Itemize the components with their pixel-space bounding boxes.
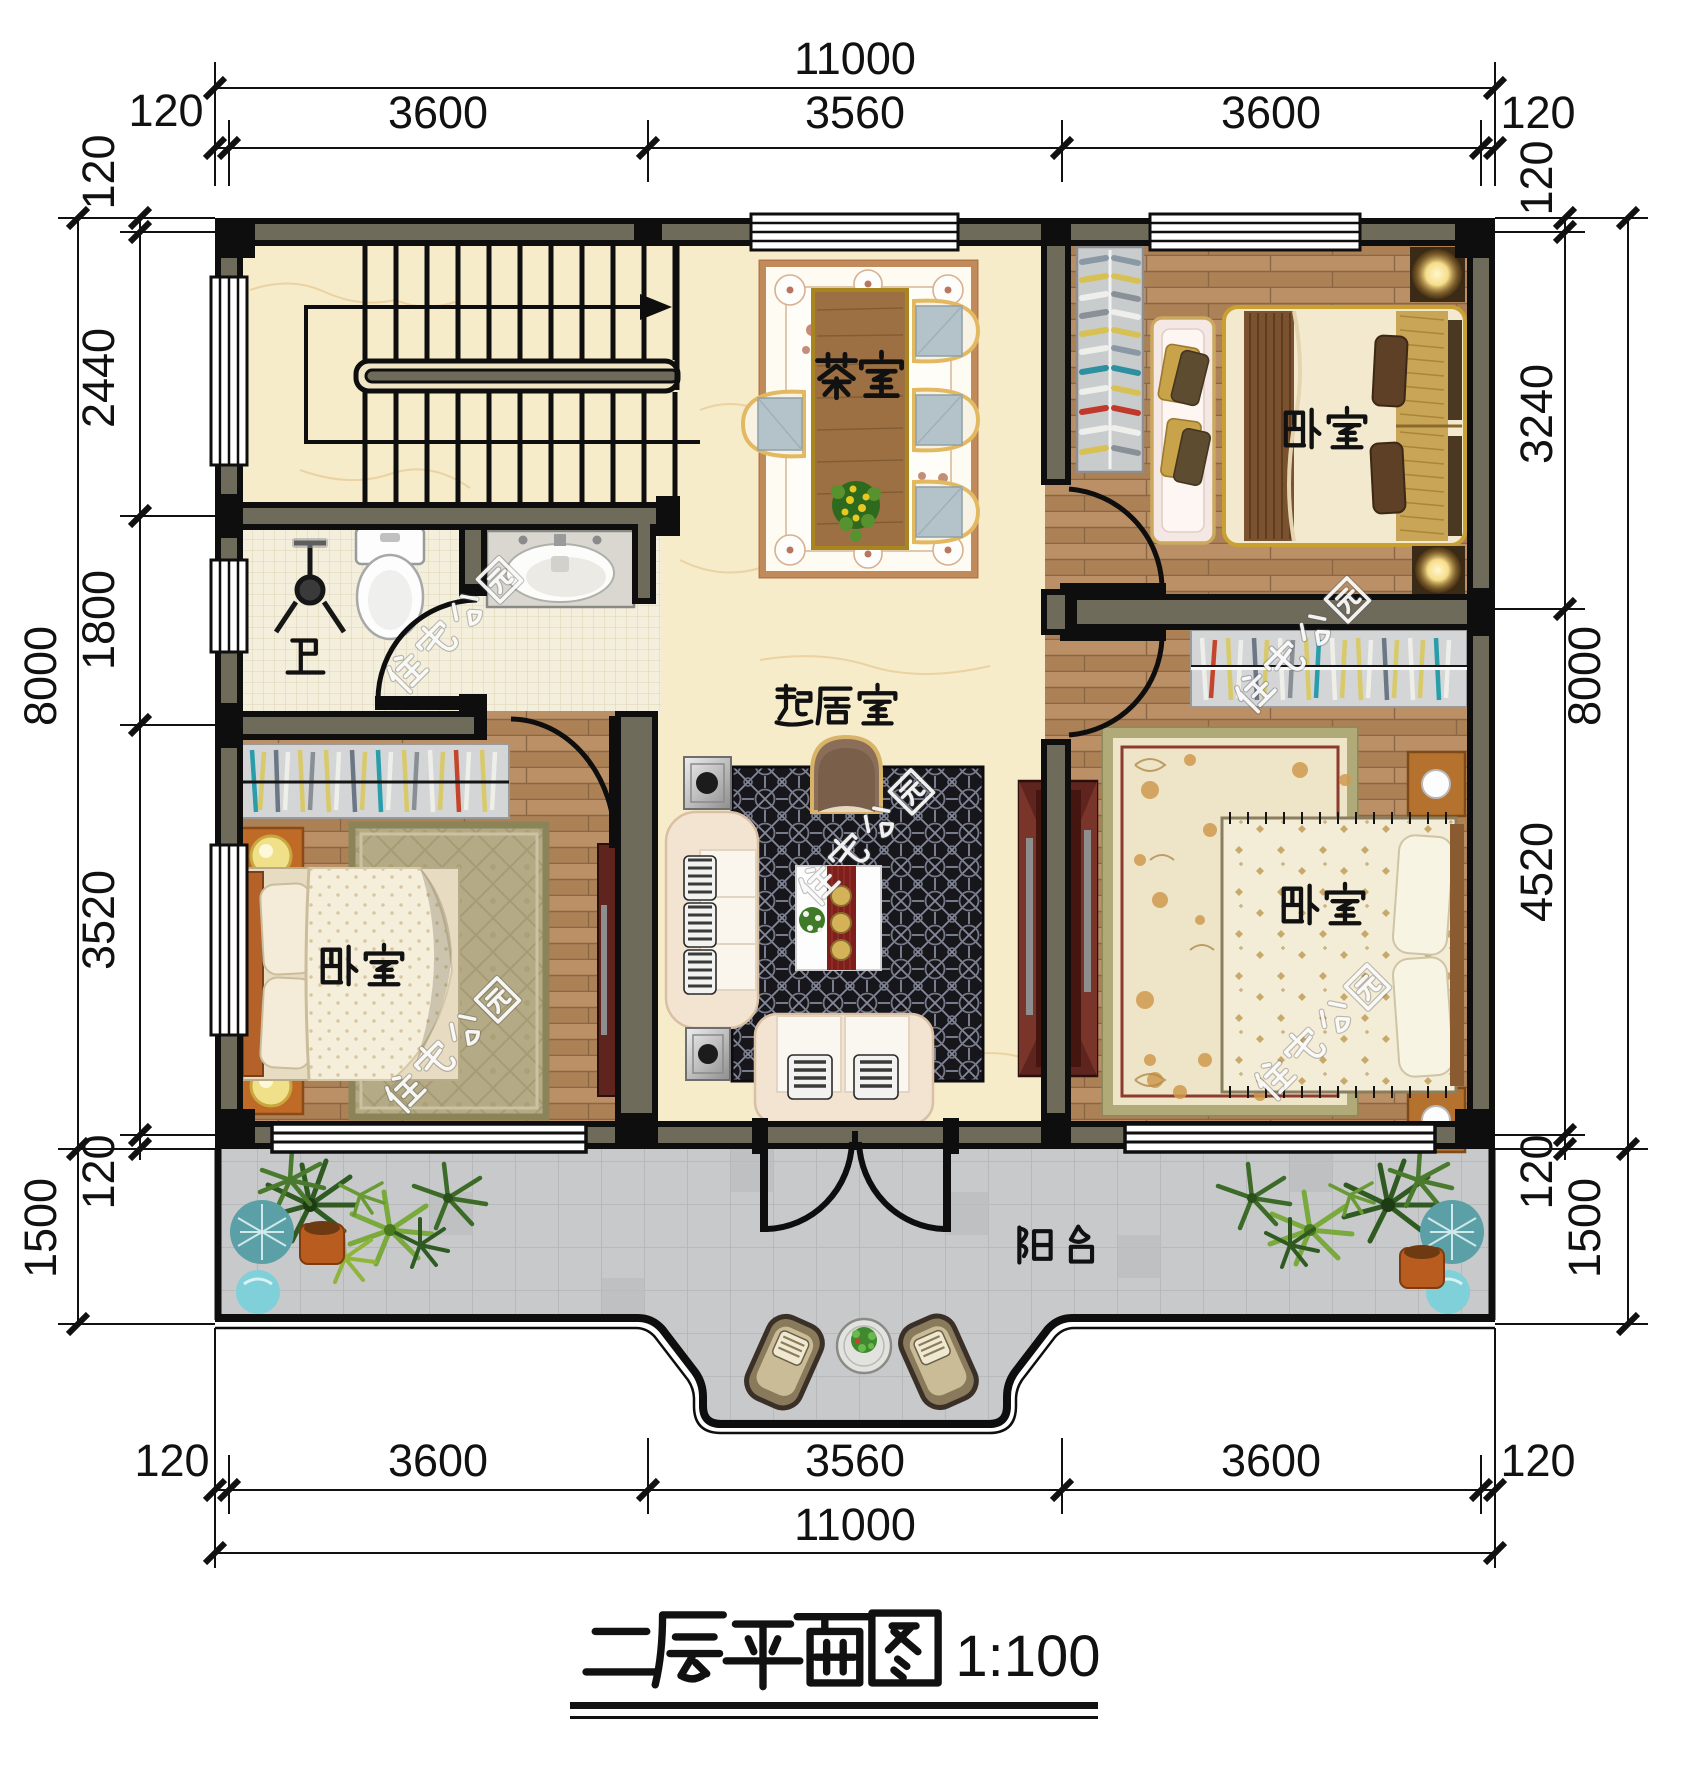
- svg-text:1:100: 1:100: [955, 1624, 1100, 1689]
- svg-text:8000: 8000: [15, 626, 66, 726]
- svg-text:120: 120: [134, 1435, 209, 1486]
- svg-text:3600: 3600: [1221, 1435, 1321, 1486]
- svg-text:3600: 3600: [388, 1435, 488, 1486]
- svg-text:3520: 3520: [73, 870, 124, 970]
- svg-text:2440: 2440: [73, 328, 124, 428]
- svg-text:1500: 1500: [15, 1178, 66, 1278]
- svg-text:1500: 1500: [1559, 1178, 1610, 1278]
- svg-text:120: 120: [73, 134, 124, 209]
- svg-text:11000: 11000: [794, 33, 916, 84]
- svg-text:120: 120: [128, 85, 203, 136]
- svg-text:120: 120: [1500, 1435, 1575, 1486]
- svg-text:3600: 3600: [388, 87, 488, 138]
- svg-text:8000: 8000: [1559, 626, 1610, 726]
- svg-text:3600: 3600: [1221, 87, 1321, 138]
- svg-text:3240: 3240: [1511, 364, 1562, 464]
- svg-text:120: 120: [1511, 140, 1562, 215]
- svg-text:120: 120: [1500, 87, 1575, 138]
- svg-text:120: 120: [73, 1134, 124, 1209]
- svg-text:4520: 4520: [1511, 822, 1562, 922]
- svg-text:3560: 3560: [805, 1435, 905, 1486]
- svg-text:11000: 11000: [794, 1499, 916, 1550]
- svg-text:120: 120: [1511, 1134, 1562, 1209]
- svg-text:1800: 1800: [73, 570, 124, 670]
- svg-text:3560: 3560: [805, 87, 905, 138]
